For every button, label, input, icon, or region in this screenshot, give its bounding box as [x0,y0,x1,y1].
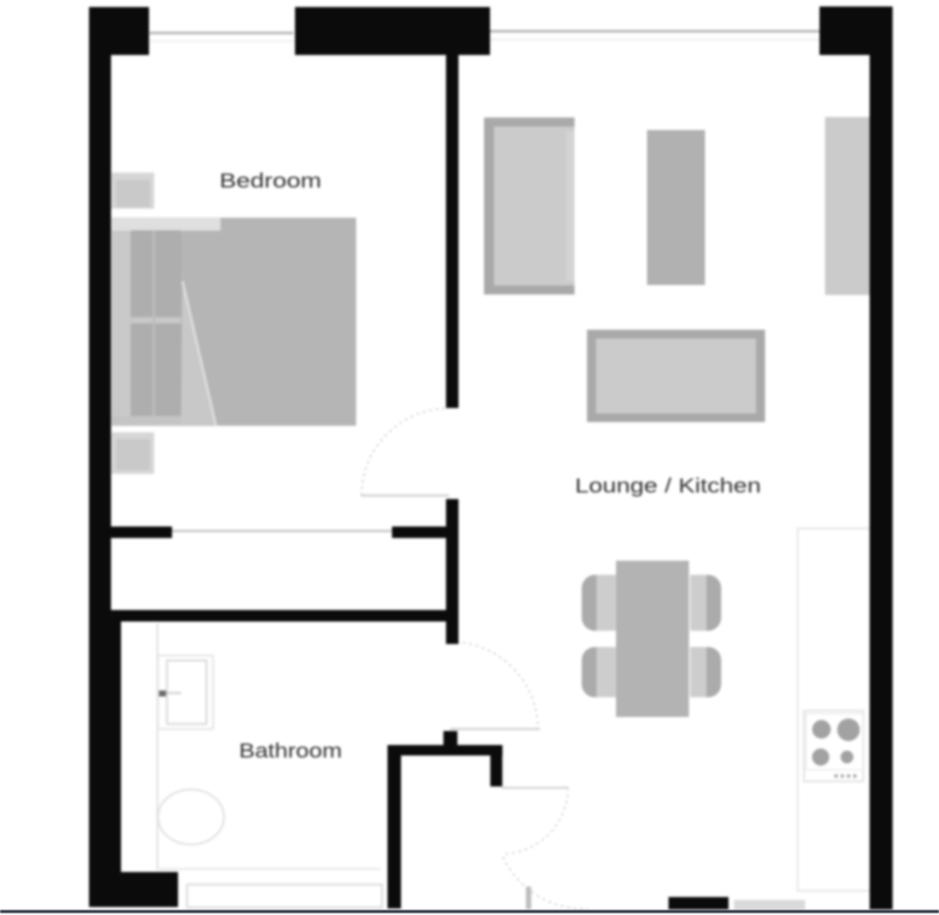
svg-text:Bathroom: Bathroom [239,741,342,763]
svg-text:Lounge / Kitchen: Lounge / Kitchen [575,476,761,498]
svg-text:Bedroom: Bedroom [220,171,322,193]
